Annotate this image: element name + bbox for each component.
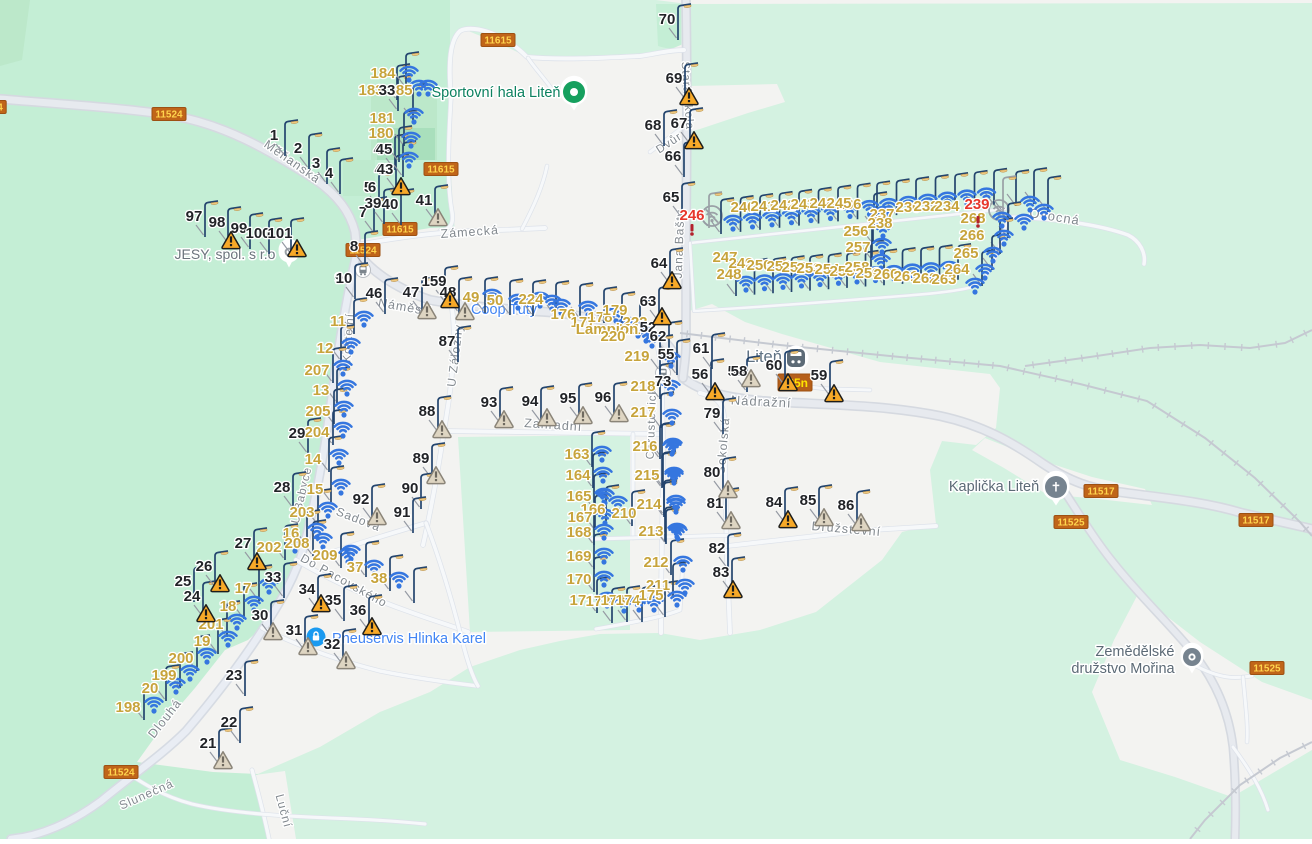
- svg-text:87: 87: [439, 333, 456, 350]
- svg-text:6: 6: [368, 179, 376, 196]
- svg-text:224: 224: [518, 291, 544, 308]
- svg-text:265: 265: [953, 245, 978, 262]
- svg-text:3: 3: [312, 155, 320, 172]
- svg-text:212: 212: [643, 554, 668, 571]
- svg-text:36: 36: [350, 602, 367, 619]
- svg-text:175: 175: [638, 587, 663, 604]
- svg-text:27: 27: [235, 535, 252, 552]
- svg-text:11615: 11615: [386, 225, 414, 236]
- svg-text:43: 43: [377, 161, 394, 178]
- svg-text:217: 217: [630, 404, 655, 421]
- svg-text:238: 238: [867, 215, 892, 232]
- svg-text:29: 29: [289, 425, 306, 442]
- svg-text:203: 203: [289, 504, 314, 521]
- svg-text:31: 31: [286, 622, 303, 639]
- svg-text:169: 169: [566, 548, 591, 565]
- svg-text:216: 216: [632, 438, 657, 455]
- svg-text:215: 215: [634, 467, 659, 484]
- svg-text:18: 18: [220, 598, 237, 615]
- svg-text:24: 24: [184, 588, 201, 605]
- svg-text:✝: ✝: [1051, 480, 1062, 495]
- svg-text:30: 30: [252, 607, 269, 624]
- svg-text:79: 79: [704, 405, 721, 422]
- svg-text:214: 214: [636, 496, 662, 513]
- svg-text:13: 13: [313, 382, 330, 399]
- svg-text:11524: 11524: [155, 110, 183, 121]
- svg-text:25: 25: [175, 573, 192, 590]
- svg-text:34: 34: [299, 581, 316, 598]
- svg-text:98: 98: [209, 214, 226, 231]
- svg-text:11525: 11525: [1253, 664, 1281, 675]
- svg-text:204: 204: [304, 424, 330, 441]
- svg-text:33: 33: [379, 82, 396, 99]
- svg-text:Kaplička Liteň: Kaplička Liteň: [949, 479, 1039, 495]
- svg-text:11517: 11517: [1242, 516, 1270, 527]
- svg-text:96: 96: [595, 389, 612, 406]
- svg-text:220: 220: [600, 328, 625, 345]
- svg-text:93: 93: [481, 394, 498, 411]
- svg-text:11517: 11517: [1087, 487, 1115, 498]
- svg-text:4: 4: [325, 165, 334, 182]
- svg-text:69: 69: [666, 70, 683, 87]
- svg-text:168: 168: [566, 524, 591, 541]
- svg-text:257: 257: [845, 239, 870, 256]
- svg-text:47: 47: [403, 284, 420, 301]
- svg-text:19: 19: [194, 633, 211, 650]
- svg-text:50: 50: [487, 292, 504, 309]
- svg-text:26: 26: [196, 558, 213, 575]
- svg-text:264: 264: [944, 261, 970, 278]
- svg-text:12: 12: [317, 340, 334, 357]
- svg-text:207: 207: [304, 362, 329, 379]
- svg-text:80: 80: [704, 464, 721, 481]
- svg-text:33: 33: [265, 569, 282, 586]
- svg-text:94: 94: [522, 393, 539, 410]
- svg-text:46: 46: [366, 285, 383, 302]
- svg-text:22: 22: [221, 714, 238, 731]
- svg-text:družstvo Mořina: družstvo Mořina: [1071, 661, 1175, 677]
- svg-text:14: 14: [305, 451, 322, 468]
- svg-text:88: 88: [419, 403, 436, 420]
- svg-text:266: 266: [959, 227, 984, 244]
- svg-text:28: 28: [274, 479, 291, 496]
- svg-text:11615: 11615: [427, 165, 455, 176]
- svg-text:219: 219: [624, 348, 649, 365]
- svg-text:65: 65: [663, 189, 680, 206]
- svg-text:Pneuservis Hlinka Karel: Pneuservis Hlinka Karel: [332, 631, 486, 647]
- svg-text:2: 2: [294, 140, 302, 157]
- svg-text:4: 4: [0, 103, 3, 114]
- svg-text:11615: 11615: [484, 36, 512, 47]
- svg-text:11524: 11524: [107, 768, 135, 779]
- svg-text:32: 32: [324, 636, 341, 653]
- svg-text:67: 67: [671, 115, 688, 132]
- svg-text:205: 205: [305, 403, 330, 420]
- svg-text:11: 11: [330, 313, 346, 330]
- svg-text:200: 200: [168, 650, 193, 667]
- svg-text:68: 68: [645, 117, 662, 134]
- svg-text:Nádražní: Nádražní: [731, 392, 792, 410]
- svg-text:17: 17: [235, 580, 252, 597]
- svg-text:20: 20: [142, 680, 159, 697]
- svg-text:159: 159: [421, 273, 446, 290]
- svg-text:164: 164: [565, 467, 591, 484]
- svg-text:40: 40: [382, 196, 399, 213]
- svg-text:84: 84: [766, 494, 783, 511]
- svg-text:208: 208: [284, 535, 309, 552]
- svg-text:174: 174: [615, 592, 641, 609]
- svg-text:256: 256: [843, 223, 868, 240]
- svg-text:209: 209: [312, 547, 337, 564]
- svg-text:70: 70: [659, 11, 676, 28]
- svg-text:90: 90: [402, 480, 419, 497]
- svg-text:83: 83: [713, 564, 730, 581]
- svg-text:10: 10: [336, 270, 353, 287]
- svg-text:15: 15: [307, 481, 324, 498]
- svg-text:234: 234: [934, 198, 960, 215]
- svg-text:Sportovní hala Liteň: Sportovní hala Liteň: [432, 85, 561, 101]
- svg-text:41: 41: [416, 192, 433, 209]
- svg-text:198: 198: [115, 699, 140, 716]
- svg-text:62: 62: [650, 328, 667, 345]
- svg-text:92: 92: [353, 491, 370, 508]
- svg-text:56: 56: [692, 366, 709, 383]
- svg-text:73: 73: [655, 373, 672, 390]
- svg-text:58: 58: [731, 363, 748, 380]
- svg-text:60: 60: [766, 357, 783, 374]
- svg-text:11525: 11525: [1057, 518, 1085, 529]
- svg-text:64: 64: [651, 255, 668, 272]
- svg-text:210: 210: [611, 505, 636, 522]
- svg-text:213: 213: [638, 523, 663, 540]
- svg-text:63: 63: [640, 293, 657, 310]
- svg-text:23: 23: [226, 667, 243, 684]
- svg-text:45: 45: [376, 141, 393, 158]
- svg-text:170: 170: [566, 571, 591, 588]
- svg-text:202: 202: [256, 539, 281, 556]
- svg-text:55: 55: [658, 346, 675, 363]
- svg-text:39: 39: [365, 195, 382, 212]
- svg-text:21: 21: [200, 735, 217, 752]
- svg-text:239: 239: [964, 196, 989, 213]
- svg-text:218: 218: [630, 378, 655, 395]
- svg-text:8: 8: [350, 238, 358, 255]
- svg-text:Zemědělské: Zemědělské: [1096, 644, 1175, 660]
- svg-text:101: 101: [267, 225, 292, 242]
- svg-text:38: 38: [371, 570, 388, 587]
- svg-text:184: 184: [370, 65, 396, 82]
- svg-text:82: 82: [709, 540, 726, 557]
- svg-text:59: 59: [811, 367, 828, 384]
- svg-text:95: 95: [560, 390, 577, 407]
- svg-text:66: 66: [665, 148, 682, 165]
- svg-text:37: 37: [347, 559, 364, 576]
- svg-text:163: 163: [564, 446, 589, 463]
- svg-text:180: 180: [368, 125, 393, 142]
- svg-text:1: 1: [270, 127, 278, 144]
- svg-text:61: 61: [693, 340, 710, 357]
- svg-text:91: 91: [394, 504, 411, 521]
- svg-text:86: 86: [838, 497, 855, 514]
- svg-text:245: 245: [826, 195, 851, 212]
- svg-text:246: 246: [679, 207, 704, 224]
- svg-text:89: 89: [413, 450, 430, 467]
- svg-text:97: 97: [186, 208, 203, 225]
- svg-text:85: 85: [800, 492, 817, 509]
